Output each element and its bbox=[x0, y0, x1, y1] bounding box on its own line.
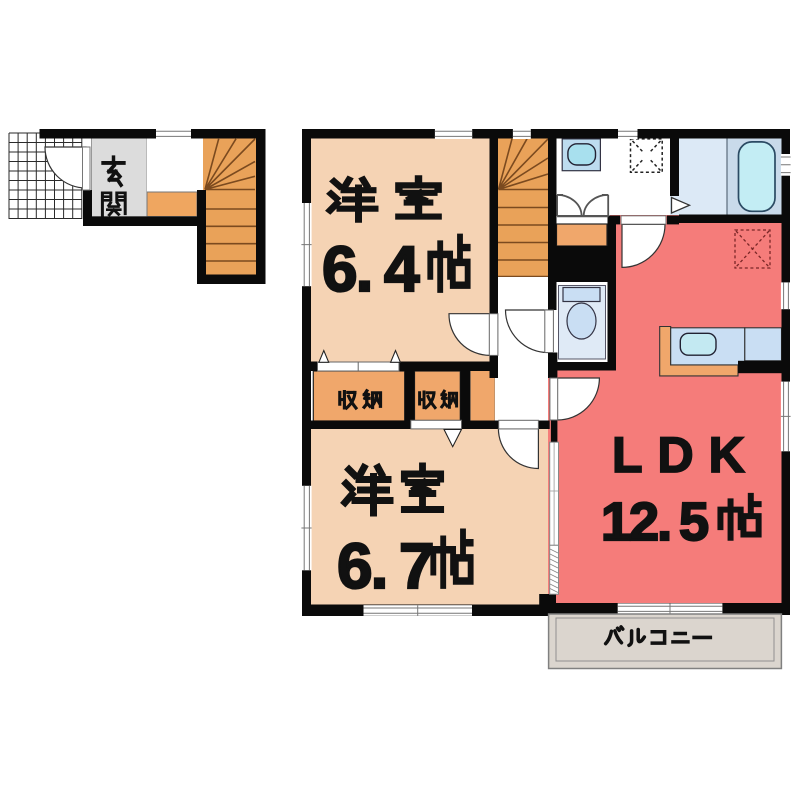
svg-text:7: 7 bbox=[399, 530, 435, 602]
svg-text:6.: 6. bbox=[337, 530, 386, 602]
svg-text:LDK: LDK bbox=[612, 427, 760, 483]
svg-text:6.: 6. bbox=[322, 233, 371, 305]
svg-text:5: 5 bbox=[679, 492, 709, 552]
svg-text:4: 4 bbox=[384, 233, 420, 305]
svg-text:12.: 12. bbox=[601, 492, 670, 552]
